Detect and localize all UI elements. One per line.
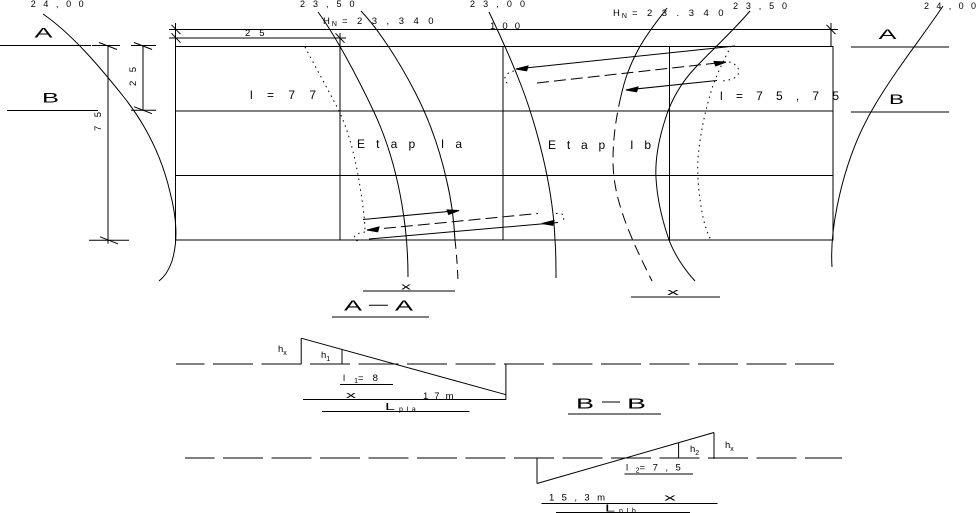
svg-text:HN=23,340: HN=23,340: [323, 16, 443, 28]
svg-text:B: B: [576, 396, 594, 413]
svg-text:Etap Ia: Etap Ia: [357, 137, 462, 151]
svg-text:23,50: 23,50: [733, 1, 787, 11]
svg-text:l2=7,5: l2=7,5: [626, 463, 688, 475]
svg-text:B: B: [627, 396, 646, 413]
svg-text:23,00: 23,00: [470, 0, 525, 9]
svg-text:HN=23.340: HN=23.340: [613, 8, 733, 20]
svg-text:24,00: 24,00: [924, 1, 976, 11]
svg-text:x: x: [664, 493, 677, 504]
svg-text:B: B: [889, 91, 904, 107]
svg-text:A: A: [879, 27, 897, 42]
svg-text:A: A: [344, 298, 362, 315]
svg-text:pIa: pIa: [399, 407, 419, 414]
svg-text:l1=8: l1=8: [343, 373, 387, 385]
svg-text:23,50: 23,50: [300, 0, 355, 9]
svg-text:x: x: [667, 287, 680, 298]
svg-text:Etap Ib: Etap Ib: [548, 138, 651, 152]
svg-text:A: A: [35, 26, 53, 41]
svg-text:l=77: l=77: [250, 88, 316, 102]
svg-text:hx: hx: [278, 344, 287, 357]
svg-text:15,3m: 15,3m: [549, 493, 605, 504]
svg-text:75: 75: [93, 112, 104, 131]
svg-text:25: 25: [128, 67, 139, 86]
svg-text:l=75,75: l=75,75: [720, 89, 839, 103]
svg-text:17m: 17m: [423, 391, 459, 402]
svg-text:24,00: 24,00: [31, 0, 84, 9]
svg-text:L: L: [605, 504, 616, 513]
svg-text:A: A: [395, 298, 413, 315]
svg-text:h1: h1: [321, 350, 330, 363]
svg-text:h2: h2: [690, 444, 699, 457]
svg-text:hx: hx: [725, 440, 734, 453]
svg-text:B: B: [42, 90, 59, 106]
